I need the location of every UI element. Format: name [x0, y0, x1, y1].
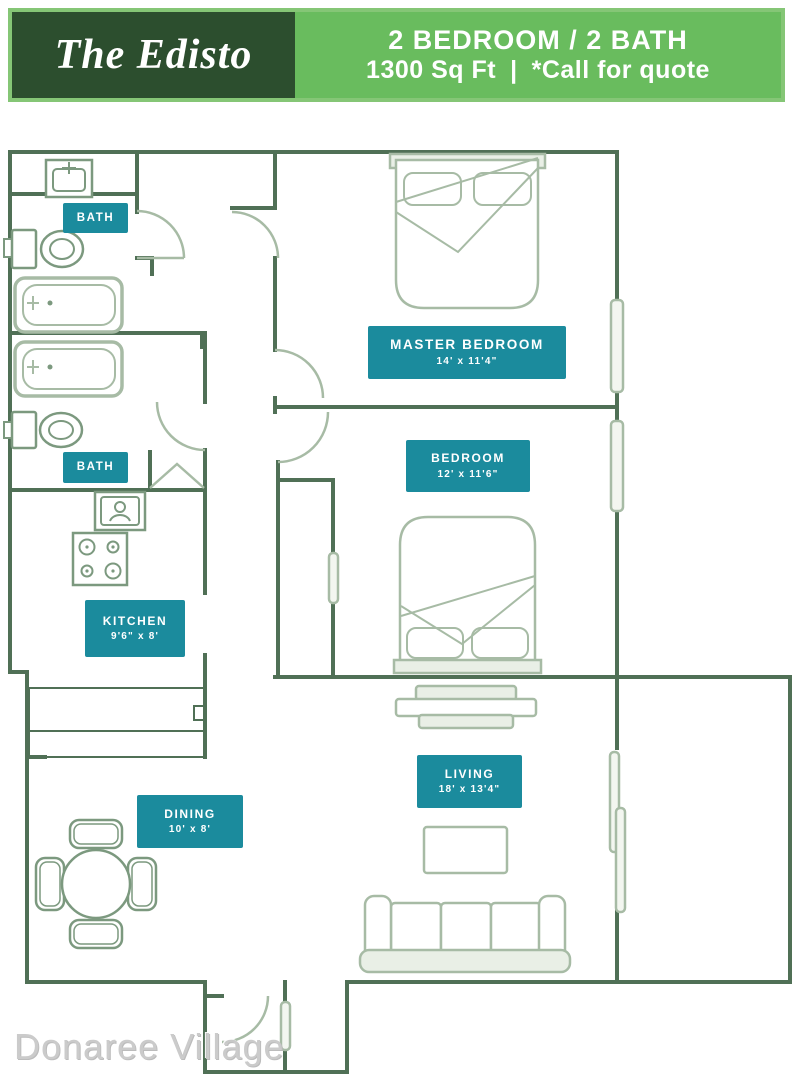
- room-label-kitchen: KITCHEN 9'6" x 8': [85, 600, 185, 657]
- floor-plan-page: BATH MASTER BEDROOM 14' x 11'4" BEDROOM …: [0, 0, 793, 1080]
- room-dimensions: 10' x 8': [169, 824, 211, 835]
- room-label-master-bedroom: MASTER BEDROOM 14' x 11'4": [368, 326, 566, 379]
- master-bed: [390, 154, 545, 308]
- divider-bar: |: [510, 56, 518, 85]
- floor-plan-specs: 2 BEDROOM / 2 BATH 1300 Sq Ft | *Call fo…: [295, 12, 781, 98]
- bath1-door: [137, 211, 184, 258]
- room-name: BATH: [77, 212, 115, 225]
- master-window: [611, 300, 623, 392]
- room-label-bedroom: BEDROOM 12' x 11'6": [406, 440, 530, 492]
- room-name: LIVING: [445, 768, 495, 781]
- room-name: KITCHEN: [103, 615, 168, 628]
- bedroom-bed: [394, 517, 541, 673]
- sofa: [360, 896, 570, 972]
- community-watermark: Donaree Village: [14, 1026, 285, 1068]
- room-label-bath-2: BATH: [63, 452, 128, 483]
- room-name: MASTER BEDROOM: [390, 338, 544, 353]
- bath2-door: [157, 402, 205, 450]
- bath2-toilet: [4, 412, 82, 448]
- bedroom-door: [278, 412, 328, 462]
- room-name: BATH: [77, 461, 115, 474]
- bifold-closet-door: [150, 464, 204, 488]
- room-name: DINING: [164, 808, 216, 821]
- square-feet: 1300 Sq Ft: [366, 56, 496, 85]
- bath1-sink-vanity: [46, 160, 92, 197]
- bedroom-window: [611, 421, 623, 511]
- bath2-bathtub: [15, 342, 122, 396]
- room-dimensions: 12' x 11'6": [437, 469, 498, 480]
- room-label-bath-1: BATH: [63, 203, 128, 233]
- room-dimensions: 18' x 13'4": [439, 784, 501, 795]
- coffee-table: [424, 827, 507, 873]
- floor-plan-name-plate: The Edisto: [12, 12, 295, 98]
- room-name: BEDROOM: [431, 452, 505, 465]
- stove: [73, 533, 127, 585]
- room-label-dining: DINING 10' x 8': [137, 795, 243, 848]
- header-banner: The Edisto 2 BEDROOM / 2 BATH 1300 Sq Ft…: [8, 8, 785, 102]
- floor-plan-title: The Edisto: [55, 31, 253, 79]
- bath1-bathtub: [15, 278, 122, 332]
- tv-console: [396, 686, 536, 728]
- sqft-price-spec: 1300 Sq Ft | *Call for quote: [366, 56, 710, 85]
- master-door: [275, 350, 323, 398]
- bed-bath-spec: 2 BEDROOM / 2 BATH: [388, 25, 688, 56]
- closet-door-panel: [329, 553, 338, 603]
- floor-plan-drawing: [0, 0, 793, 1080]
- kitchen-counter: [29, 688, 205, 757]
- bath1-toilet: [4, 230, 83, 268]
- room-dimensions: 14' x 11'4": [436, 356, 497, 367]
- hall-door: [232, 212, 278, 258]
- call-for-quote: *Call for quote: [532, 56, 710, 85]
- room-label-living: LIVING 18' x 13'4": [417, 755, 522, 808]
- sliding-door-panel: [616, 808, 625, 912]
- room-dimensions: 9'6" x 8': [111, 631, 159, 642]
- bath2-sink-vanity: [95, 492, 145, 530]
